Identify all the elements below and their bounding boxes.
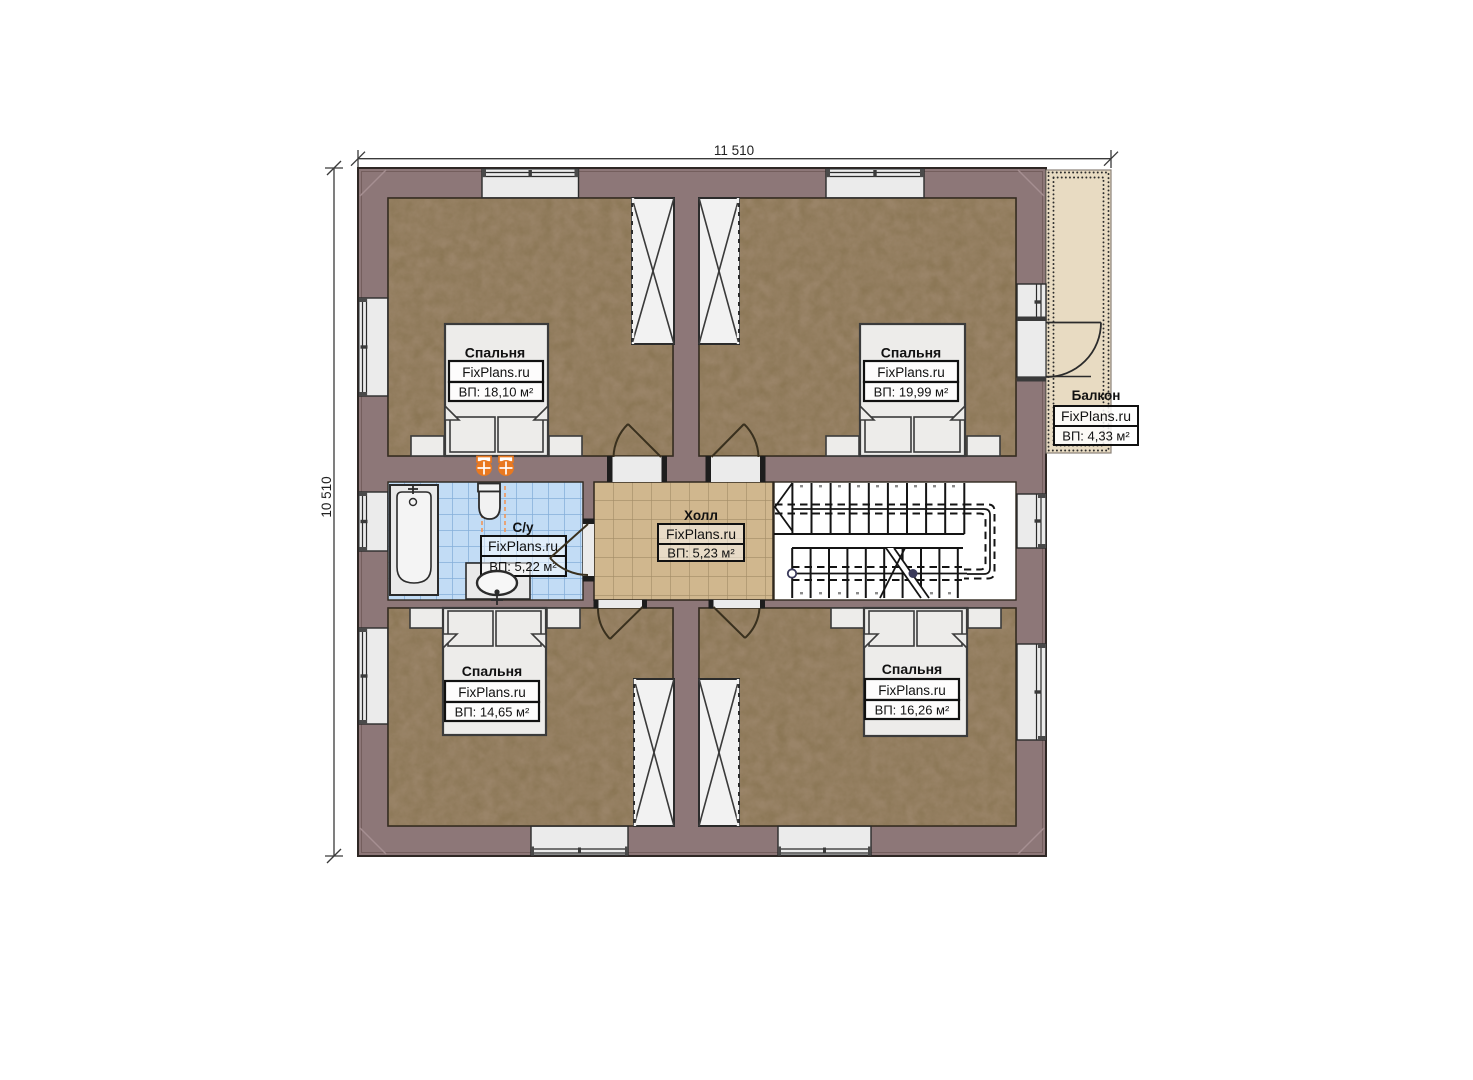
svg-text:Холл: Холл — [684, 508, 718, 523]
svg-text:FixPlans.ru: FixPlans.ru — [1061, 408, 1131, 424]
svg-text:ВП: 19,99 м²: ВП: 19,99 м² — [874, 385, 949, 400]
svg-text:Спальня: Спальня — [465, 345, 525, 361]
svg-text:Балкон: Балкон — [1072, 388, 1121, 403]
svg-text:FixPlans.ru: FixPlans.ru — [878, 683, 946, 698]
svg-text:ВП: 18,10 м²: ВП: 18,10 м² — [459, 385, 534, 400]
svg-text:10 510: 10 510 — [319, 476, 334, 517]
svg-text:FixPlans.ru: FixPlans.ru — [458, 685, 526, 700]
svg-text:11 510: 11 510 — [714, 143, 754, 158]
svg-text:ВП: 4,33 м²: ВП: 4,33 м² — [1062, 429, 1130, 444]
svg-text:FixPlans.ru: FixPlans.ru — [462, 365, 530, 380]
svg-text:ВП: 5,23 м²: ВП: 5,23 м² — [667, 546, 735, 561]
svg-text:Спальня: Спальня — [881, 345, 941, 361]
svg-text:Спальня: Спальня — [882, 661, 942, 677]
svg-text:С/у: С/у — [512, 520, 534, 535]
svg-text:Спальня: Спальня — [462, 663, 522, 679]
svg-text:ВП: 14,65 м²: ВП: 14,65 м² — [455, 705, 530, 720]
svg-text:ВП: 16,26 м²: ВП: 16,26 м² — [875, 703, 950, 718]
svg-text:FixPlans.ru: FixPlans.ru — [666, 526, 736, 542]
svg-text:FixPlans.ru: FixPlans.ru — [877, 365, 945, 380]
svg-text:FixPlans.ru: FixPlans.ru — [488, 538, 558, 554]
